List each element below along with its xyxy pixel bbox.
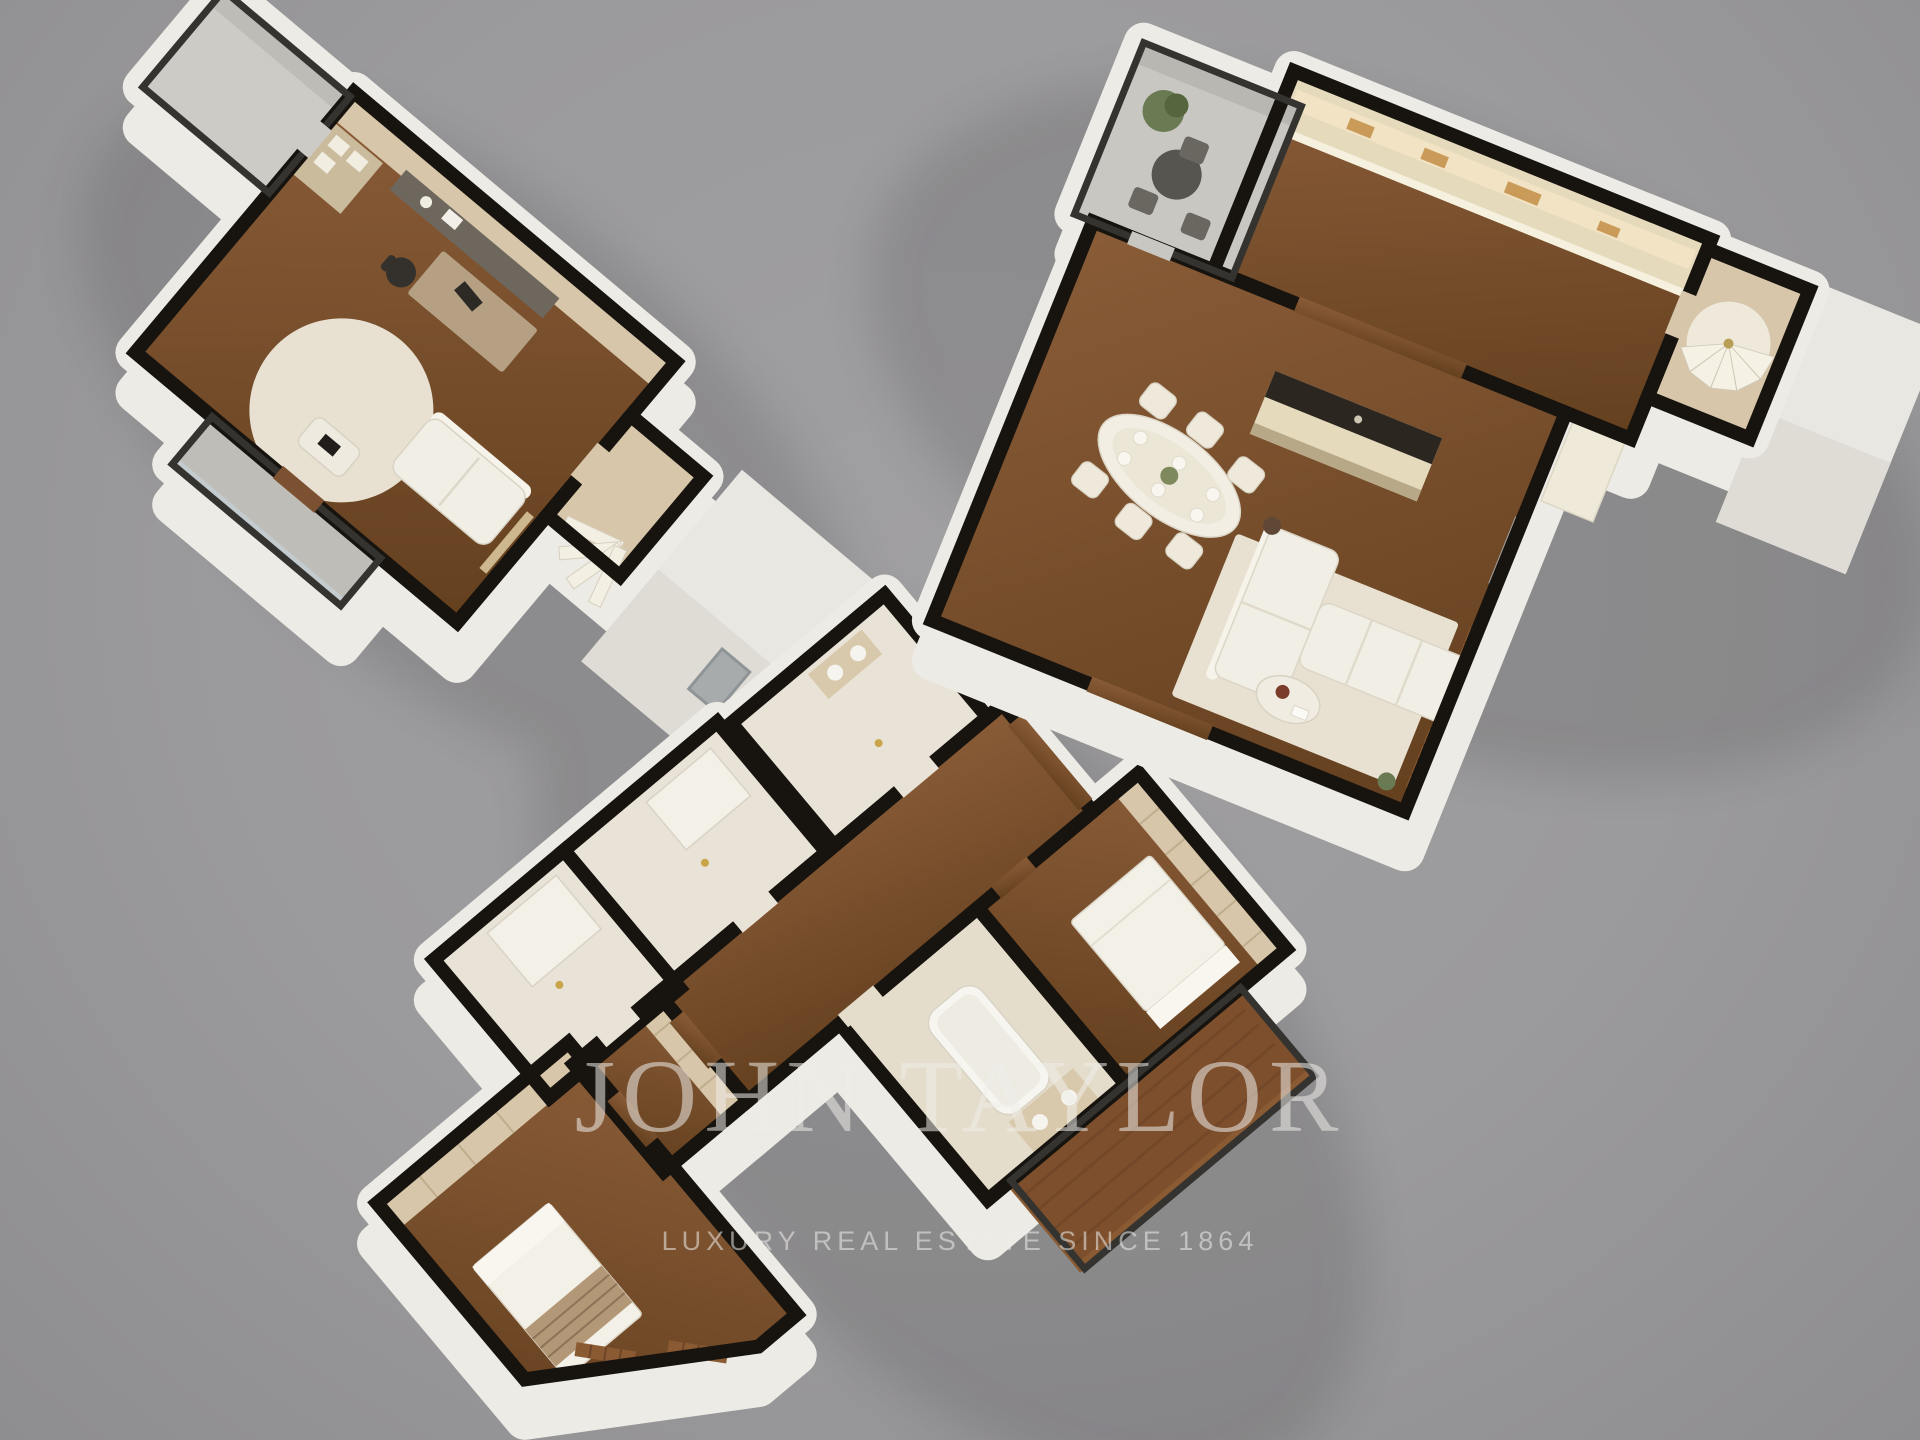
floor-plan-canvas xyxy=(0,0,1920,1440)
floor-plan-render: JOHN TAYLOR LUXURY REAL ESTATE SINCE 186… xyxy=(0,0,1920,1440)
